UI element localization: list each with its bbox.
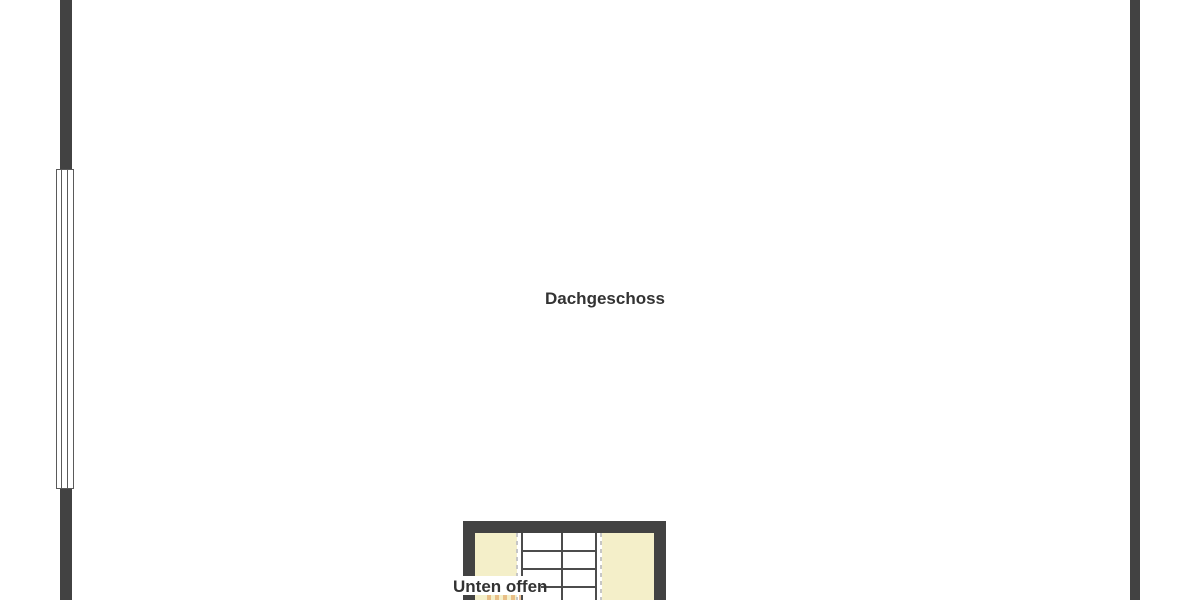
floor-plan: Dachgeschoss Unten offen bbox=[0, 0, 1200, 600]
stair-annotation-label: Unten offen bbox=[453, 577, 547, 596]
stair-opening-dashed-line bbox=[600, 533, 602, 600]
room-label: Dachgeschoss bbox=[455, 289, 755, 308]
window-icon bbox=[56, 169, 74, 489]
window-pane-line bbox=[67, 170, 68, 488]
stairwell-right-wall bbox=[654, 533, 666, 600]
stair-tread-line bbox=[522, 550, 597, 552]
stair-edge-line-right bbox=[595, 533, 597, 600]
right-wall bbox=[1130, 0, 1140, 600]
stair-center-line bbox=[561, 533, 563, 600]
void-area-right bbox=[602, 533, 654, 600]
stair-tread-line bbox=[522, 568, 597, 570]
left-wall-upper-segment bbox=[60, 0, 72, 169]
window-pane-line bbox=[61, 170, 62, 488]
left-wall-lower-segment bbox=[60, 489, 72, 600]
stairwell-top-wall bbox=[463, 521, 666, 533]
